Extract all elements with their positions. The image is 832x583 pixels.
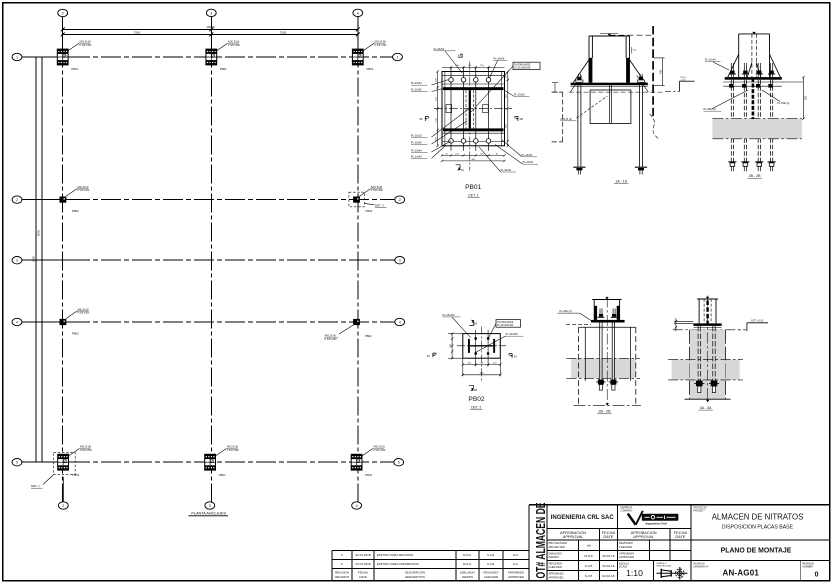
svg-text:PB01: PB01 bbox=[219, 473, 226, 477]
svg-text:5: 5 bbox=[16, 461, 18, 465]
svg-text:E.F.: E.F. bbox=[513, 562, 518, 566]
svg-text:4: 4 bbox=[356, 504, 358, 508]
svg-text:1:10: 1:10 bbox=[626, 568, 643, 578]
svg-text:PB02: PB02 bbox=[366, 209, 373, 213]
svg-text:02.04.18: 02.04.18 bbox=[602, 564, 614, 568]
svg-text:PL-30E (4): PL-30E (4) bbox=[704, 108, 716, 111]
svg-text:PL-20x60: PL-20x60 bbox=[411, 141, 422, 144]
svg-text:DATE: DATE bbox=[359, 575, 367, 579]
svg-text:NUMBER: NUMBER bbox=[803, 565, 814, 568]
svg-text:PL-20x60: PL-20x60 bbox=[411, 89, 422, 92]
svg-text:DIBUJADO: DIBUJADO bbox=[549, 552, 563, 556]
svg-text:DISPOSICION PLACAS BASE: DISPOSICION PLACAS BASE bbox=[722, 525, 794, 531]
svg-text:M.S.K.: M.S.K. bbox=[584, 554, 593, 558]
svg-text:2: 2 bbox=[62, 11, 64, 15]
svg-text:2B: 2B bbox=[419, 117, 422, 121]
svg-text:PB02: PB02 bbox=[365, 334, 372, 338]
svg-text:DET. 1: DET. 1 bbox=[31, 484, 40, 488]
svg-text:PL-25x360x540: PL-25x360x540 bbox=[514, 67, 531, 69]
svg-text:PL-20x64: PL-20x64 bbox=[523, 161, 534, 164]
svg-text:PB02: PB02 bbox=[468, 396, 484, 403]
svg-text:S.CH.: S.CH. bbox=[487, 562, 495, 566]
svg-text:DRAWN: DRAWN bbox=[462, 575, 474, 579]
svg-text:PROYECCION: PROYECCION bbox=[657, 566, 672, 568]
svg-text:SIMBOLO: SIMBOLO bbox=[657, 563, 667, 565]
svg-text:PLANTA ANCLAJES: PLANTA ANCLAJES bbox=[191, 511, 226, 515]
svg-text:E.F.: E.F. bbox=[513, 553, 518, 557]
svg-text:2A: 2A bbox=[427, 354, 430, 358]
svg-text:DESCRIPTION: DESCRIPTION bbox=[405, 575, 426, 579]
svg-text:0: 0 bbox=[815, 570, 819, 579]
svg-text:450: 450 bbox=[659, 69, 662, 74]
svg-text:PB01: PB01 bbox=[465, 184, 481, 191]
svg-text:3: 3 bbox=[16, 259, 18, 263]
svg-text:S.CH.: S.CH. bbox=[487, 553, 495, 557]
svg-text:5: 5 bbox=[398, 461, 400, 465]
svg-text:EMITIDO PARA REVISION: EMITIDO PARA REVISION bbox=[377, 553, 413, 557]
svg-text:PL-20x64: PL-20x64 bbox=[494, 57, 505, 60]
svg-text:A: A bbox=[341, 562, 343, 566]
svg-text:APPROVAL: APPROVAL bbox=[632, 534, 654, 539]
svg-text:4: 4 bbox=[399, 320, 401, 324]
svg-text:7500: 7500 bbox=[134, 30, 141, 34]
svg-text:23.03.2018: 23.03.2018 bbox=[355, 562, 370, 566]
svg-text:OT# ALMACEN DE: OT# ALMACEN DE bbox=[534, 503, 548, 579]
svg-text:DRAWN: DRAWN bbox=[549, 555, 559, 559]
svg-text:PL-20x60: PL-20x60 bbox=[514, 94, 525, 97]
svg-text:02.04.2018: 02.04.2018 bbox=[355, 553, 370, 557]
svg-text:APROBADO: APROBADO bbox=[619, 552, 634, 556]
svg-text:02.04.18: 02.04.18 bbox=[602, 554, 614, 558]
svg-text:PLATINA BASE: PLATINA BASE bbox=[497, 321, 514, 324]
svg-text:Ingenieria Civil: Ingenieria Civil bbox=[646, 522, 668, 526]
svg-text:02.04.18: 02.04.18 bbox=[602, 574, 614, 578]
svg-text:DET. 2: DET. 2 bbox=[471, 405, 481, 409]
svg-text:N.P.T. +0.00: N.P.T. +0.00 bbox=[751, 321, 764, 323]
svg-text:DET. 2: DET. 2 bbox=[375, 203, 384, 207]
svg-text:M.S.K.: M.S.K. bbox=[463, 553, 472, 557]
svg-text:AN-AG01: AN-AG01 bbox=[723, 569, 760, 578]
svg-text:APROBADO: APROBADO bbox=[549, 572, 564, 576]
svg-text:REVISADO: REVISADO bbox=[549, 562, 563, 566]
svg-text:PL-20x250: PL-20x250 bbox=[506, 333, 519, 336]
svg-text:2A: 2A bbox=[514, 354, 517, 358]
svg-text:PROJECT: PROJECT bbox=[694, 510, 706, 513]
svg-text:3: 3 bbox=[399, 259, 401, 263]
svg-text:REVISION: REVISION bbox=[335, 575, 350, 579]
svg-text:3A - 3A: 3A - 3A bbox=[700, 406, 712, 410]
svg-text:CHECKED: CHECKED bbox=[484, 575, 498, 579]
svg-text:2B: 2B bbox=[520, 117, 523, 121]
svg-text:1A: 1A bbox=[461, 168, 464, 172]
svg-text:PL-30E (4): PL-30E (4) bbox=[560, 310, 572, 313]
svg-text:PL-20x60: PL-20x60 bbox=[522, 154, 533, 157]
svg-text:2: 2 bbox=[399, 198, 401, 202]
svg-text:CHECKED: CHECKED bbox=[549, 565, 562, 569]
svg-text:15000: 15000 bbox=[206, 25, 215, 29]
svg-text:1B: 1B bbox=[474, 388, 477, 392]
svg-text:PB01: PB01 bbox=[71, 67, 78, 71]
svg-text:M.S.K.: M.S.K. bbox=[463, 562, 472, 566]
svg-text:7500: 7500 bbox=[280, 30, 287, 34]
svg-text:PB01: PB01 bbox=[367, 67, 374, 71]
svg-text:EMITIDO PARA APROBACION: EMITIDO PARA APROBACION bbox=[377, 562, 419, 566]
svg-text:2B - 2B: 2B - 2B bbox=[599, 410, 612, 414]
svg-text:PL-20x64: PL-20x64 bbox=[411, 156, 422, 159]
svg-text:DRAWING Nº: DRAWING Nº bbox=[694, 564, 709, 568]
svg-text:500: 500 bbox=[804, 95, 807, 100]
svg-text:1A - 1A: 1A - 1A bbox=[615, 179, 627, 183]
svg-text:PB01: PB01 bbox=[220, 67, 227, 71]
svg-text:4: 4 bbox=[16, 320, 18, 324]
svg-text:3: 3 bbox=[209, 504, 211, 508]
svg-text:APPROVED: APPROVED bbox=[618, 555, 634, 559]
svg-text:PB02: PB02 bbox=[72, 332, 79, 336]
svg-text:PL-25x300: PL-25x300 bbox=[443, 314, 456, 317]
svg-text:1: 1 bbox=[397, 55, 399, 59]
svg-text:PL-20x64: PL-20x64 bbox=[705, 59, 716, 62]
svg-text:PLATINA BASE: PLATINA BASE bbox=[514, 63, 531, 66]
svg-text:REVISADO: REVISADO bbox=[619, 541, 633, 545]
svg-text:PL-30E (4): PL-30E (4) bbox=[777, 102, 789, 105]
svg-text:PL-20x64: PL-20x64 bbox=[411, 82, 422, 85]
svg-text:2B - 2B: 2B - 2B bbox=[749, 174, 762, 178]
svg-text:PLANO DE MONTAJE: PLANO DE MONTAJE bbox=[721, 548, 792, 555]
svg-text:PROJECTED: PROJECTED bbox=[549, 545, 565, 549]
svg-text:2: 2 bbox=[16, 198, 18, 202]
svg-text:1A: 1A bbox=[458, 53, 461, 57]
svg-text:DATE: DATE bbox=[603, 534, 613, 539]
svg-text:PL-25x300x300: PL-25x300x300 bbox=[497, 325, 514, 327]
svg-text:PB02: PB02 bbox=[72, 209, 79, 213]
svg-text:DATE: DATE bbox=[675, 534, 685, 539]
svg-text:4: 4 bbox=[357, 11, 359, 15]
svg-text:1B: 1B bbox=[474, 321, 477, 325]
svg-text:ALMACEN DE NITRATOS: ALMACEN DE NITRATOS bbox=[712, 513, 804, 522]
svg-text:S.CH.: S.CH. bbox=[585, 564, 593, 568]
svg-text:APPROVED: APPROVED bbox=[507, 575, 524, 579]
svg-text:APPROVED: APPROVED bbox=[548, 575, 564, 579]
svg-text:1: 1 bbox=[16, 55, 18, 59]
svg-text:-0.20: -0.20 bbox=[681, 80, 687, 82]
svg-text:PB01: PB01 bbox=[365, 473, 372, 477]
svg-text:PL-20x25: PL-20x25 bbox=[411, 134, 422, 137]
svg-text:P 5/8"x350: P 5/8"x350 bbox=[325, 338, 338, 341]
svg-text:DET. 1: DET. 1 bbox=[468, 193, 478, 197]
svg-text:COMPANY: COMPANY bbox=[621, 510, 633, 513]
svg-text:6000: 6000 bbox=[37, 230, 41, 236]
svg-text:PROYECTADO: PROYECTADO bbox=[549, 541, 568, 545]
svg-text:2500: 2500 bbox=[32, 256, 36, 262]
svg-text:3: 3 bbox=[210, 11, 212, 15]
svg-text:PB01: PB01 bbox=[73, 473, 80, 477]
svg-text:ANC B (2): ANC B (2) bbox=[560, 117, 572, 121]
svg-text:PL-20x64: PL-20x64 bbox=[411, 149, 422, 152]
svg-text:2: 2 bbox=[62, 504, 64, 508]
svg-text:CHECKED: CHECKED bbox=[619, 545, 632, 549]
svg-text:S.CH.: S.CH. bbox=[585, 574, 593, 578]
svg-text:APPROVAL: APPROVAL bbox=[562, 534, 584, 539]
svg-text:INGENIERIA CRL SAC: INGENIERIA CRL SAC bbox=[551, 515, 615, 521]
svg-text:PL-20x64: PL-20x64 bbox=[434, 48, 445, 51]
svg-text:PL-20x64: PL-20x64 bbox=[501, 169, 512, 172]
